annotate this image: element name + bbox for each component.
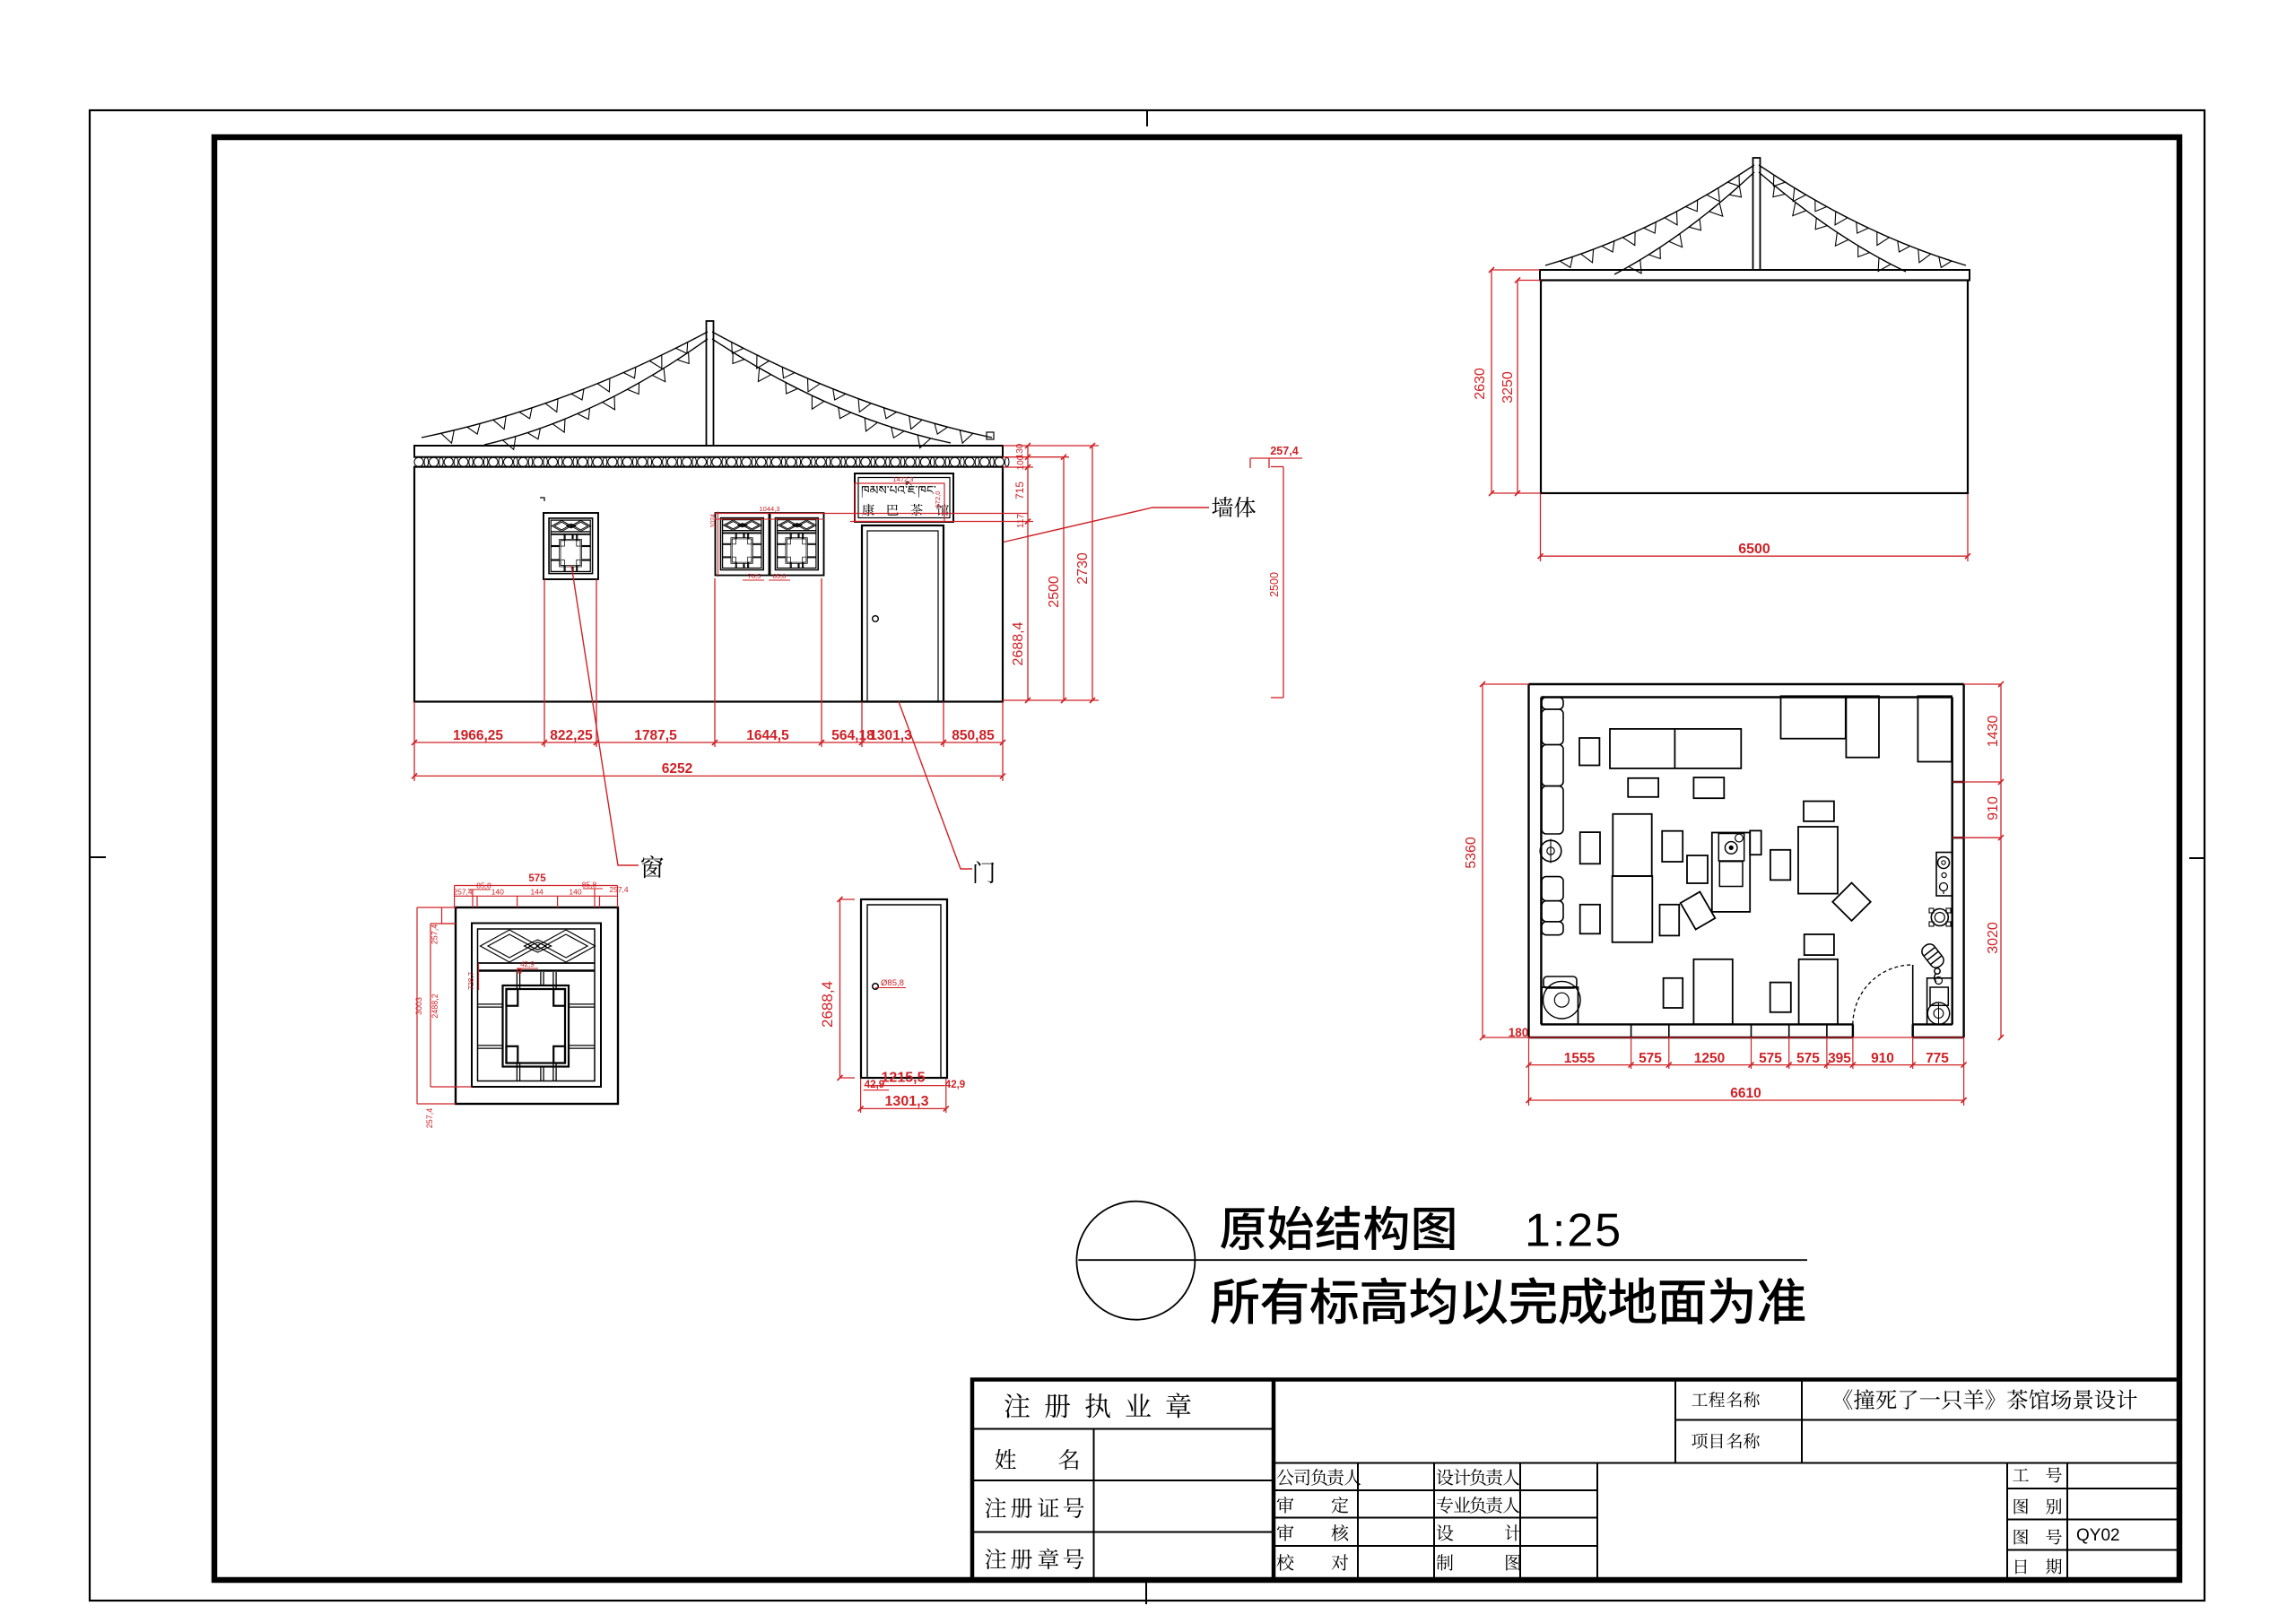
svg-text:5360: 5360 bbox=[1464, 837, 1479, 869]
svg-text:117: 117 bbox=[1016, 514, 1026, 528]
svg-text:144: 144 bbox=[531, 888, 544, 897]
svg-text:3003: 3003 bbox=[414, 997, 423, 1015]
svg-text:575: 575 bbox=[1796, 1051, 1820, 1066]
svg-text:257,4: 257,4 bbox=[1270, 445, 1298, 457]
svg-text:910: 910 bbox=[1986, 796, 2001, 820]
svg-text:2488,2: 2488,2 bbox=[430, 994, 439, 1019]
svg-text:1024: 1024 bbox=[710, 514, 717, 528]
svg-text:822,25: 822,25 bbox=[550, 728, 593, 743]
svg-text:2630: 2630 bbox=[1473, 368, 1488, 400]
svg-text:140: 140 bbox=[569, 888, 581, 897]
svg-text:85,8: 85,8 bbox=[476, 881, 491, 890]
svg-text:257,4: 257,4 bbox=[609, 885, 629, 894]
svg-text:257,4: 257,4 bbox=[453, 888, 473, 897]
svg-text:2688,4: 2688,4 bbox=[819, 981, 836, 1028]
svg-text:3020: 3020 bbox=[1986, 922, 2001, 954]
svg-text:85,8: 85,8 bbox=[582, 881, 597, 890]
svg-text:6610: 6610 bbox=[1730, 1086, 1761, 1101]
svg-text:395: 395 bbox=[1828, 1051, 1851, 1066]
svg-text:1301,3: 1301,3 bbox=[869, 728, 912, 743]
svg-text:575: 575 bbox=[1639, 1051, 1662, 1066]
svg-text:1472,3: 1472,3 bbox=[893, 475, 914, 483]
svg-text:715: 715 bbox=[1013, 482, 1026, 499]
svg-text:910: 910 bbox=[1871, 1051, 1894, 1066]
svg-text:257,4: 257,4 bbox=[425, 1108, 434, 1129]
svg-text:42,9: 42,9 bbox=[520, 960, 535, 968]
svg-text:1250: 1250 bbox=[1694, 1051, 1725, 1066]
svg-text:564,18: 564,18 bbox=[831, 728, 874, 743]
svg-text:Ø85,8: Ø85,8 bbox=[881, 978, 904, 988]
svg-text:2500: 2500 bbox=[1268, 572, 1281, 597]
svg-text:1555: 1555 bbox=[1564, 1051, 1596, 1066]
svg-text:1044,3: 1044,3 bbox=[760, 505, 780, 513]
svg-text:1966,25: 1966,25 bbox=[453, 728, 503, 743]
svg-text:672,0: 672,0 bbox=[934, 491, 942, 508]
svg-text:850,85: 850,85 bbox=[952, 728, 995, 743]
svg-text:1:25: 1:25 bbox=[1525, 1205, 1622, 1257]
svg-text:1301,3: 1301,3 bbox=[885, 1094, 929, 1109]
svg-text:85,8: 85,8 bbox=[773, 572, 787, 580]
svg-text:575: 575 bbox=[1759, 1051, 1782, 1066]
svg-text:775: 775 bbox=[1926, 1051, 1949, 1066]
svg-text:6252: 6252 bbox=[662, 761, 692, 777]
svg-text:575: 575 bbox=[528, 873, 546, 884]
svg-text:1430: 1430 bbox=[1986, 716, 2001, 748]
svg-text:78,5: 78,5 bbox=[748, 572, 761, 580]
svg-text:1787,5: 1787,5 bbox=[634, 728, 677, 743]
svg-text:728,7: 728,7 bbox=[467, 971, 475, 990]
svg-text:2500: 2500 bbox=[1047, 576, 1062, 608]
svg-text:3250: 3250 bbox=[1500, 371, 1516, 404]
svg-text:1644,5: 1644,5 bbox=[746, 728, 789, 743]
svg-text:2688,4: 2688,4 bbox=[1011, 621, 1026, 665]
svg-text:257,4: 257,4 bbox=[430, 924, 439, 945]
svg-text:QY02: QY02 bbox=[2076, 1526, 2120, 1545]
svg-text:42,9: 42,9 bbox=[945, 1080, 965, 1090]
svg-text:140: 140 bbox=[491, 888, 504, 897]
svg-text:1215,5: 1215,5 bbox=[882, 1071, 926, 1086]
svg-text:100: 100 bbox=[1016, 455, 1026, 470]
svg-text:180: 180 bbox=[1509, 1026, 1529, 1039]
svg-text:6500: 6500 bbox=[1738, 542, 1770, 557]
svg-text:2730: 2730 bbox=[1075, 552, 1091, 585]
